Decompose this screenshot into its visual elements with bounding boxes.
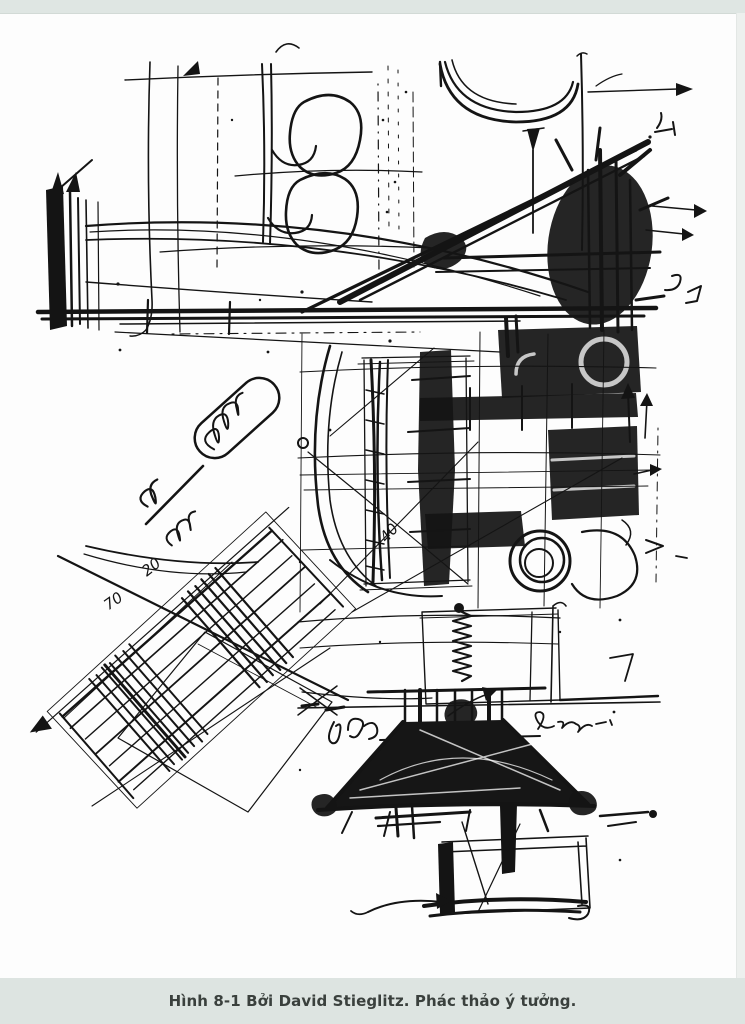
top-margin-band [0, 0, 745, 14]
figure-caption: Hình 8-1 Bởi David Stieglitz. Phác thảo … [169, 992, 577, 1010]
figure-caption-bar: Hình 8-1 Bởi David Stieglitz. Phác thảo … [0, 978, 745, 1024]
sketch-wedge-truss [38, 128, 707, 353]
sketch-spring-frame [298, 603, 660, 729]
sketch-topleft-guides [125, 44, 432, 336]
ggo-scribble [329, 719, 377, 744]
sketch-central-cluster [298, 316, 687, 612]
handwritten-note-70: 70 [100, 588, 126, 614]
sketch-bottom-blocks [351, 804, 657, 919]
book-page: 20 70 40 [0, 0, 745, 1024]
concept-sketch-figure: 20 70 40 [0, 0, 745, 1024]
sketch-tilted-structure [26, 499, 371, 828]
signature-scribble [535, 712, 612, 732]
right-margin-strip [736, 13, 745, 978]
